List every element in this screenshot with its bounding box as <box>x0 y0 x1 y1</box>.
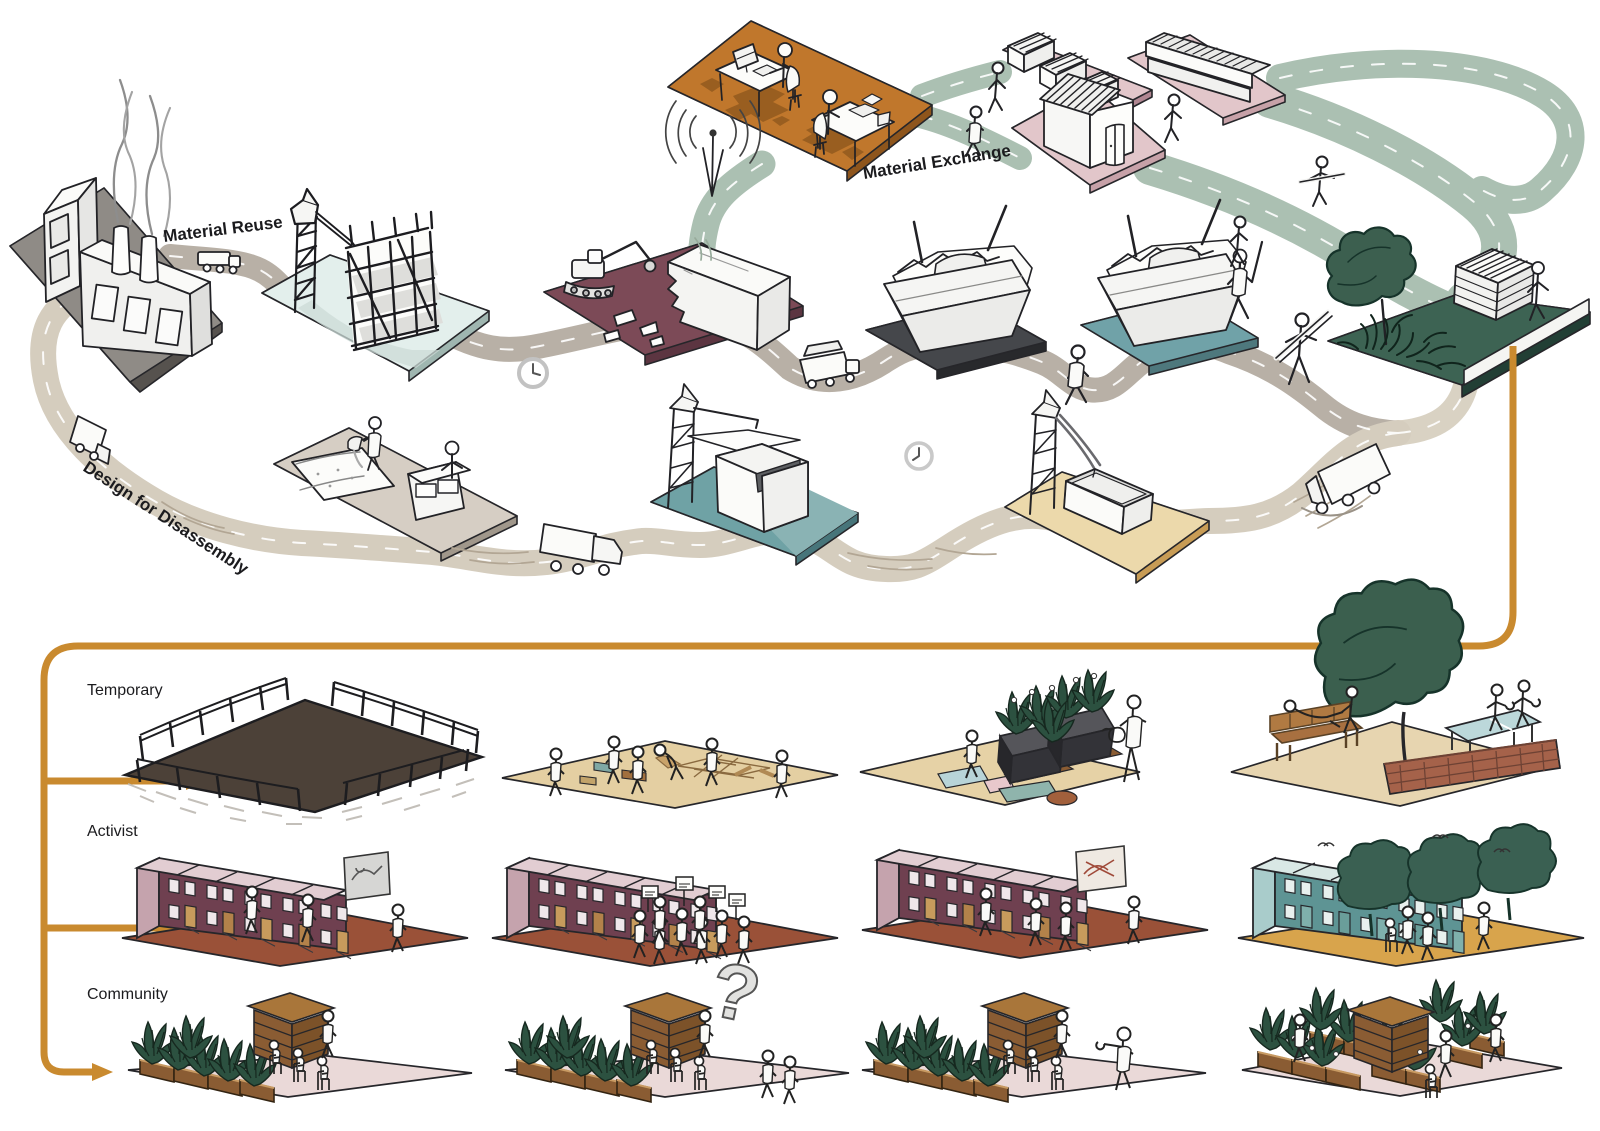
svg-text:Community: Community <box>87 986 168 1003</box>
svg-text:Material Reuse: Material Reuse <box>162 212 283 245</box>
svg-text:?: ? <box>703 944 768 1040</box>
svg-text:Temporary: Temporary <box>87 682 163 699</box>
svg-text:Activist: Activist <box>87 823 138 840</box>
